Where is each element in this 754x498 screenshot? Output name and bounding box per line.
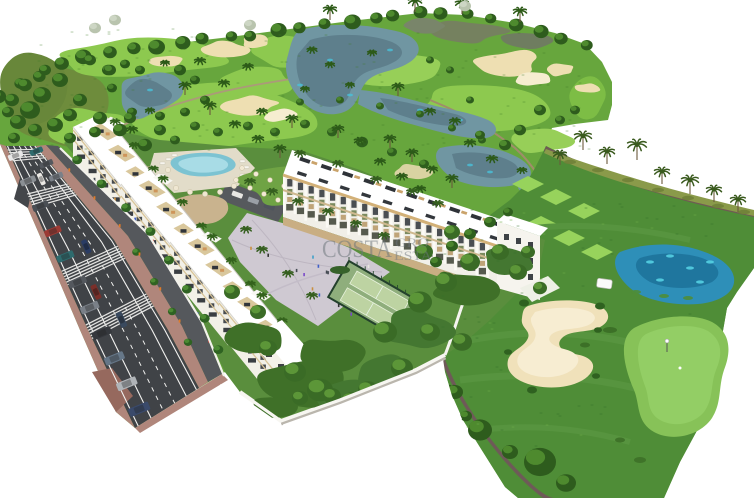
svg-text:COSTA: COSTA <box>322 236 392 263</box>
svg-text:ESTA: ESTA <box>394 248 433 263</box>
